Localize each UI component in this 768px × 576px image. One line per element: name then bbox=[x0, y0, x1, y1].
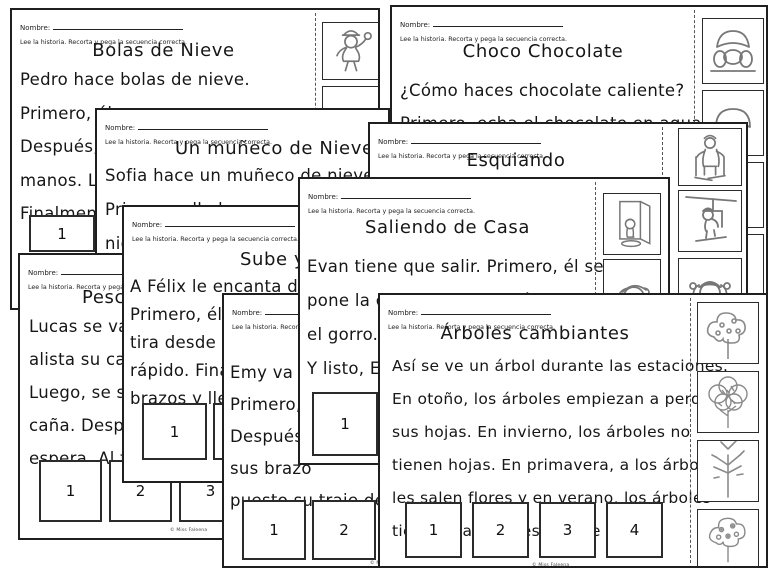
clipart-skier-with-poles-icon bbox=[678, 128, 742, 186]
nombre-label: Nombre: bbox=[378, 138, 408, 146]
sequence-answer-boxes[interactable]: 1234 bbox=[405, 502, 663, 558]
sequence-box-1[interactable]: 1 bbox=[39, 460, 102, 522]
nombre-label: Nombre: bbox=[132, 221, 162, 229]
page-title: Esquiando bbox=[370, 150, 662, 171]
sequence-box-2[interactable]: 2 bbox=[312, 500, 376, 560]
story-line: ¿Cómo haces chocolate caliente? bbox=[400, 81, 702, 114]
clipart-tree-with-flowers-icon bbox=[697, 509, 759, 567]
story-line: sus hojas. En invierno, los árboles no bbox=[392, 423, 728, 456]
nombre-label: Nombre: bbox=[20, 24, 50, 32]
clipart-kid-drinking-cocoa-icon bbox=[702, 18, 764, 84]
story-line: Evan tiene que salir. Primero, él se bbox=[307, 257, 618, 291]
sequence-box-1[interactable]: 1 bbox=[142, 403, 207, 460]
story-line: tienen hojas. En primavera, a los árbole… bbox=[392, 456, 728, 489]
page-title: Saliendo de Casa bbox=[300, 217, 595, 238]
story-line: Así se ve un árbol durante las estacione… bbox=[392, 357, 728, 390]
page-title: Un muñeco de Nieve bbox=[175, 138, 374, 159]
name-blank-line[interactable] bbox=[421, 307, 551, 315]
story-line: Pedro hace bolas de nieve. bbox=[20, 70, 250, 104]
sequence-box-4[interactable]: 4 bbox=[606, 502, 663, 558]
name-blank-line[interactable] bbox=[53, 22, 183, 30]
clipart-kid-on-ski-lift-icon bbox=[678, 190, 742, 252]
worksheet-collage: Nombre: Lee la historia. Recorta y pega … bbox=[0, 0, 768, 576]
page-title: Choco Chocolate bbox=[392, 41, 694, 62]
cut-line bbox=[690, 298, 691, 563]
name-blank-line[interactable] bbox=[165, 219, 295, 227]
copyright-watermark: © Miss Faleena bbox=[532, 563, 569, 568]
sequence-box-1[interactable]: 1 bbox=[312, 392, 378, 456]
sequence-box-1[interactable]: 1 bbox=[242, 500, 306, 560]
sequence-box-3[interactable]: 3 bbox=[539, 502, 596, 558]
clipart-tree-with-leaves-icon bbox=[697, 371, 759, 433]
nombre-label: Nombre: bbox=[232, 309, 262, 317]
sequence-box-1[interactable]: 1 bbox=[29, 215, 95, 252]
story-line: En otoño, los árboles empiezan a perder bbox=[392, 390, 728, 423]
clipart-bare-tree-icon bbox=[697, 440, 759, 502]
clipart-tree-with-fruits-icon bbox=[697, 302, 759, 364]
nombre-label: Nombre: bbox=[388, 309, 418, 317]
name-blank-line[interactable] bbox=[433, 19, 563, 27]
name-blank-line[interactable] bbox=[341, 191, 471, 199]
sequence-box-2[interactable]: 2 bbox=[472, 502, 529, 558]
nombre-label: Nombre: bbox=[28, 269, 58, 277]
worksheet-arboles-cambiantes: Nombre: Lee la historia. Recorta y pega … bbox=[378, 293, 768, 568]
page-title: Bolas de Nieve bbox=[12, 40, 315, 61]
name-blank-line[interactable] bbox=[138, 122, 268, 130]
clipart-kid-at-open-door-icon bbox=[603, 193, 661, 255]
nombre-label: Nombre: bbox=[400, 21, 430, 29]
nombre-label: Nombre: bbox=[308, 193, 338, 201]
name-blank-line[interactable] bbox=[411, 136, 541, 144]
copyright-watermark: © Miss Faleena bbox=[170, 528, 207, 533]
page-title: Árboles cambiantes bbox=[380, 323, 690, 344]
clipart-kid-throwing-snowball-icon bbox=[322, 22, 380, 80]
nombre-label: Nombre: bbox=[105, 124, 135, 132]
sequence-box-1[interactable]: 1 bbox=[405, 502, 462, 558]
